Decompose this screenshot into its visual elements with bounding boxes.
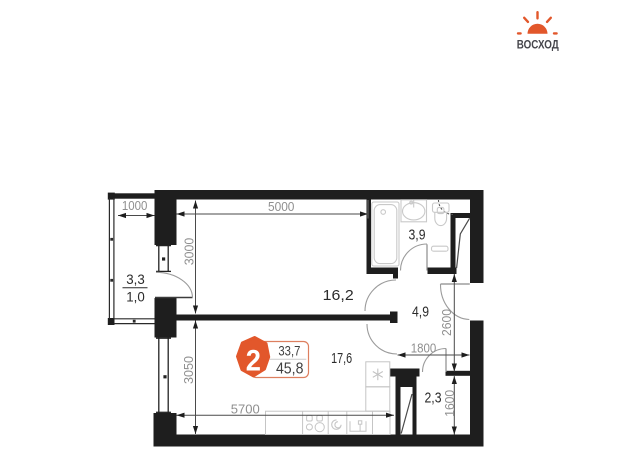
svg-text:2,3: 2,3 bbox=[425, 390, 442, 407]
svg-text:17,6: 17,6 bbox=[331, 350, 352, 367]
svg-text:16,2: 16,2 bbox=[323, 287, 354, 304]
svg-text:2: 2 bbox=[246, 345, 261, 378]
svg-text:2600: 2600 bbox=[439, 309, 454, 336]
svg-text:3,9: 3,9 bbox=[409, 226, 426, 243]
svg-text:1,0: 1,0 bbox=[126, 289, 145, 305]
svg-text:4,9: 4,9 bbox=[412, 304, 429, 321]
svg-text:3,3: 3,3 bbox=[126, 271, 145, 287]
svg-text:45,8: 45,8 bbox=[276, 361, 304, 378]
svg-text:33,7: 33,7 bbox=[278, 343, 300, 358]
svg-text:1800: 1800 bbox=[411, 341, 437, 356]
svg-text:3000: 3000 bbox=[181, 238, 196, 266]
svg-text:5700: 5700 bbox=[231, 401, 260, 416]
svg-text:5000: 5000 bbox=[268, 199, 295, 214]
svg-text:1000: 1000 bbox=[122, 198, 148, 213]
svg-text:ВОСХОД: ВОСХОД bbox=[517, 39, 559, 51]
svg-text:3050: 3050 bbox=[181, 356, 196, 384]
svg-text:1600: 1600 bbox=[442, 390, 457, 417]
